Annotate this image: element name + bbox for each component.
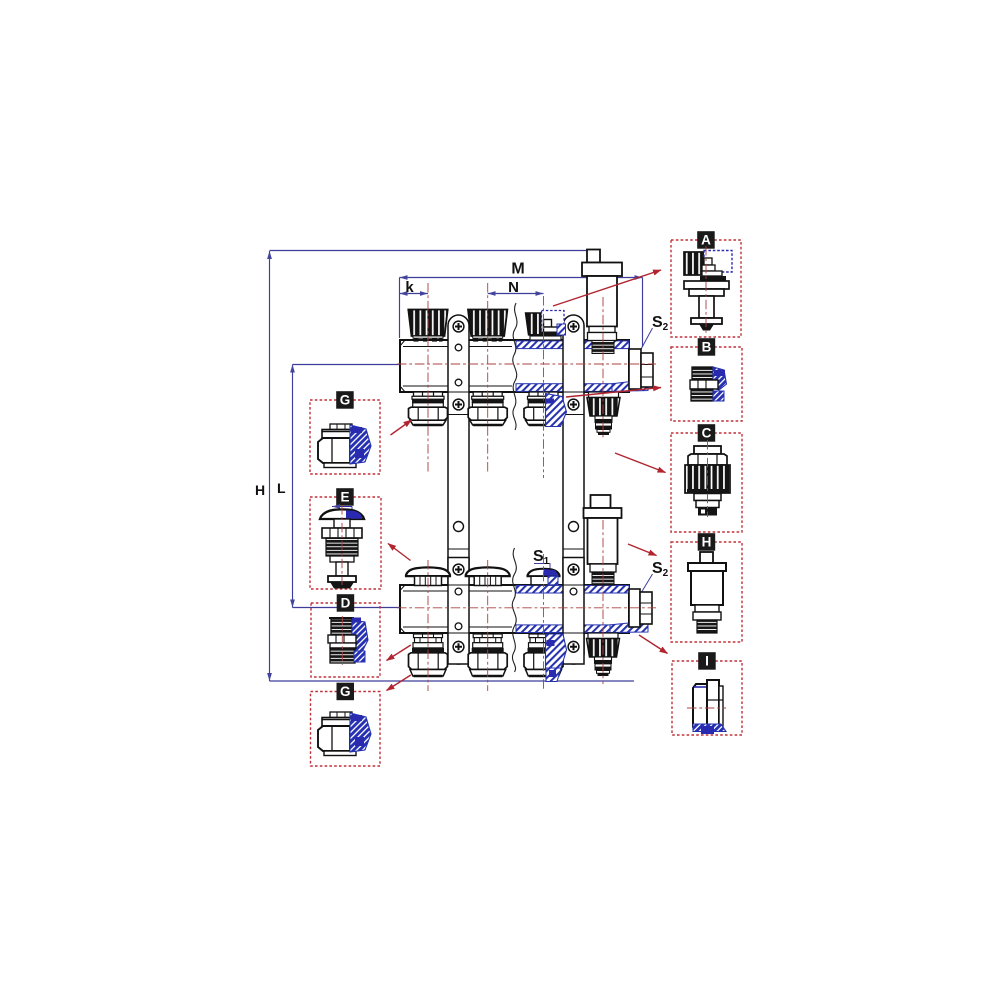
svg-text:M: M [511, 261, 524, 278]
svg-text:H: H [255, 482, 265, 498]
svg-text:D: D [341, 596, 351, 611]
svg-text:k: k [405, 279, 414, 296]
svg-text:E: E [340, 490, 349, 505]
svg-text:N: N [508, 279, 519, 296]
svg-text:G: G [340, 684, 351, 699]
svg-text:B: B [702, 340, 712, 355]
svg-text:H: H [702, 535, 712, 550]
svg-text:L: L [277, 480, 286, 496]
svg-text:G: G [340, 393, 351, 408]
svg-text:C: C [702, 426, 712, 441]
svg-text:A: A [701, 233, 711, 248]
svg-text:I: I [705, 654, 709, 669]
